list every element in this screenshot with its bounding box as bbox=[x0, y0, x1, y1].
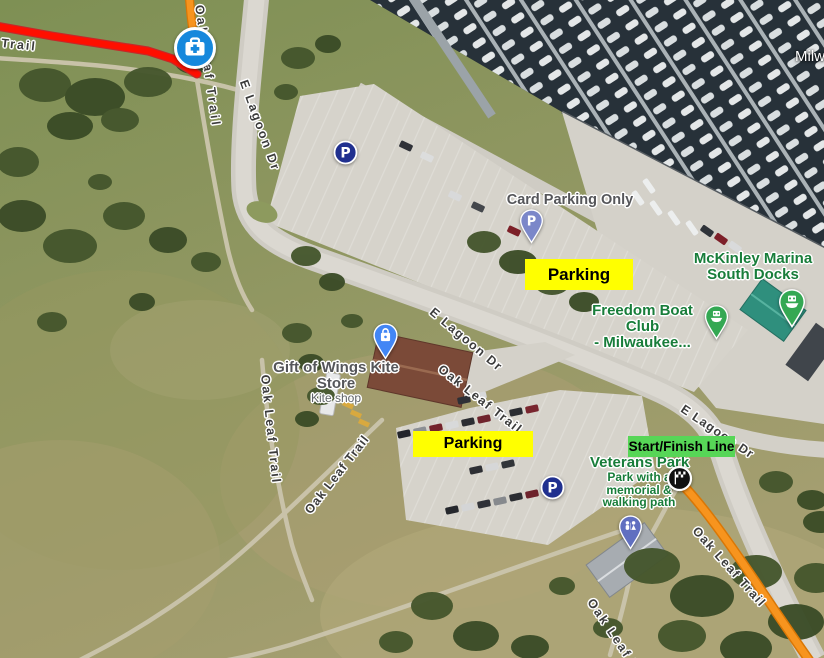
map-canvas[interactable]: Trail Oak Leaf Trail E Lagoon Dr Oak Lea… bbox=[0, 0, 824, 658]
parking-letter-icon: P bbox=[547, 481, 557, 497]
parking-circle-marker-north[interactable]: P bbox=[333, 140, 358, 165]
city-label-milwaukee: Milw bbox=[795, 48, 824, 65]
restroom-pin[interactable] bbox=[618, 515, 643, 550]
start-finish-flag-marker[interactable] bbox=[666, 465, 693, 492]
card-parking-pin[interactable]: P bbox=[519, 209, 544, 244]
first-aid-station-marker[interactable] bbox=[173, 26, 217, 70]
parking-letter-icon: P bbox=[340, 146, 350, 162]
parking-annotation-2: Parking bbox=[413, 431, 533, 457]
poi-label-kite-store[interactable]: Gift of Wings Kite Store Kite shop bbox=[258, 360, 414, 405]
parking-annotation-1: Parking bbox=[525, 259, 633, 290]
parking-letter-icon: P bbox=[527, 214, 536, 229]
poi-label-mckinley-marina[interactable]: McKinley Marina South Docks bbox=[688, 251, 818, 283]
start-finish-annotation: Start/Finish Line bbox=[628, 436, 735, 457]
mckinley-marina-pin[interactable] bbox=[778, 287, 806, 330]
poi-label-card-parking-only: Card Parking Only bbox=[505, 193, 635, 209]
parking-circle-marker-south[interactable]: P bbox=[540, 475, 565, 500]
freedom-boat-club-pin[interactable] bbox=[704, 304, 729, 341]
kite-store-pin[interactable] bbox=[371, 323, 400, 360]
poi-label-freedom-boat-club[interactable]: Freedom Boat Club - Milwaukee... bbox=[580, 303, 705, 352]
